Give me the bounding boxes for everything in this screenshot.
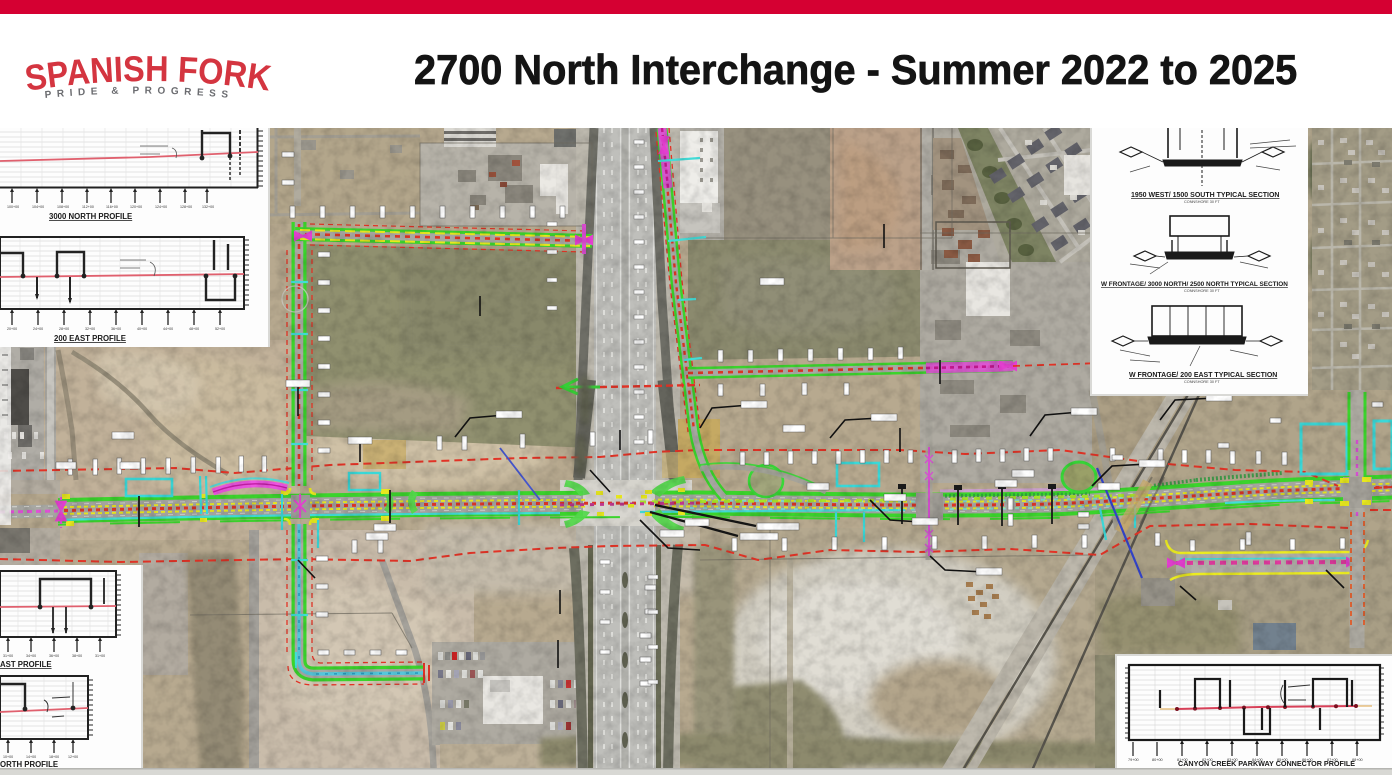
svg-text:36+00: 36+00 bbox=[111, 327, 121, 331]
svg-text:100+00: 100+00 bbox=[7, 205, 19, 209]
svg-text:44+00: 44+00 bbox=[163, 327, 173, 331]
svg-text:PRIDE & PROGRESS: PRIDE & PROGRESS bbox=[44, 85, 231, 100]
svg-text:3000 NORTH PROFILE: 3000 NORTH PROFILE bbox=[49, 212, 132, 221]
svg-text:80+00: 80+00 bbox=[1152, 758, 1163, 762]
svg-text:40+00: 40+00 bbox=[137, 327, 147, 331]
svg-text:124+00: 124+00 bbox=[155, 205, 167, 209]
svg-text:CANYON CREEK PARKWAY CONNECTOR: CANYON CREEK PARKWAY CONNECTOR PROFILE bbox=[1178, 759, 1355, 768]
svg-text:CONNSHORE 30 FT: CONNSHORE 30 FT bbox=[1184, 289, 1220, 293]
svg-text:18+00: 18+00 bbox=[49, 755, 59, 759]
svg-text:10+00: 10+00 bbox=[3, 755, 13, 759]
svg-text:38+00: 38+00 bbox=[72, 654, 82, 658]
svg-text:CONNSHORE 30 FT: CONNSHORE 30 FT bbox=[1184, 200, 1220, 204]
svg-text:34+00: 34+00 bbox=[26, 654, 36, 658]
svg-text:1950 WEST/ 1500 SOUTH TYPICAL: 1950 WEST/ 1500 SOUTH TYPICAL SECTION bbox=[1131, 192, 1279, 199]
svg-text:24+00: 24+00 bbox=[33, 327, 43, 331]
svg-text:200 EAST PROFILE: 200 EAST PROFILE bbox=[54, 334, 126, 343]
svg-text:W FRONTAGE/ 3000 NORTH/ 2500 N: W FRONTAGE/ 3000 NORTH/ 2500 NORTH TYPIC… bbox=[1101, 281, 1288, 288]
svg-text:31+00: 31+00 bbox=[3, 654, 13, 658]
svg-text:112+00: 112+00 bbox=[82, 205, 94, 209]
svg-text:14+00: 14+00 bbox=[26, 755, 36, 759]
svg-text:28+00: 28+00 bbox=[59, 327, 69, 331]
svg-text:120+00: 120+00 bbox=[130, 205, 142, 209]
svg-text:104+00: 104+00 bbox=[32, 205, 44, 209]
svg-text:12+00: 12+00 bbox=[68, 755, 78, 759]
svg-text:108+00: 108+00 bbox=[57, 205, 69, 209]
svg-text:W FRONTAGE/ 200 EAST TYPICAL S: W FRONTAGE/ 200 EAST TYPICAL SECTION bbox=[1129, 372, 1277, 379]
svg-text:52+00: 52+00 bbox=[215, 327, 225, 331]
svg-text:31+00: 31+00 bbox=[95, 654, 105, 658]
svg-text:132+00: 132+00 bbox=[202, 205, 214, 209]
svg-text:36+00: 36+00 bbox=[49, 654, 59, 658]
svg-text:32+00: 32+00 bbox=[85, 327, 95, 331]
svg-text:ORTH PROFILE: ORTH PROFILE bbox=[0, 760, 58, 769]
svg-text:CONNSHORE 30 FT: CONNSHORE 30 FT bbox=[1184, 380, 1220, 384]
svg-text:48+00: 48+00 bbox=[189, 327, 199, 331]
svg-text:79+00: 79+00 bbox=[1128, 758, 1139, 762]
svg-text:116+00: 116+00 bbox=[106, 205, 118, 209]
svg-text:128+00: 128+00 bbox=[180, 205, 192, 209]
svg-text:20+00: 20+00 bbox=[7, 327, 17, 331]
svg-text:AST PROFILE: AST PROFILE bbox=[0, 660, 52, 669]
